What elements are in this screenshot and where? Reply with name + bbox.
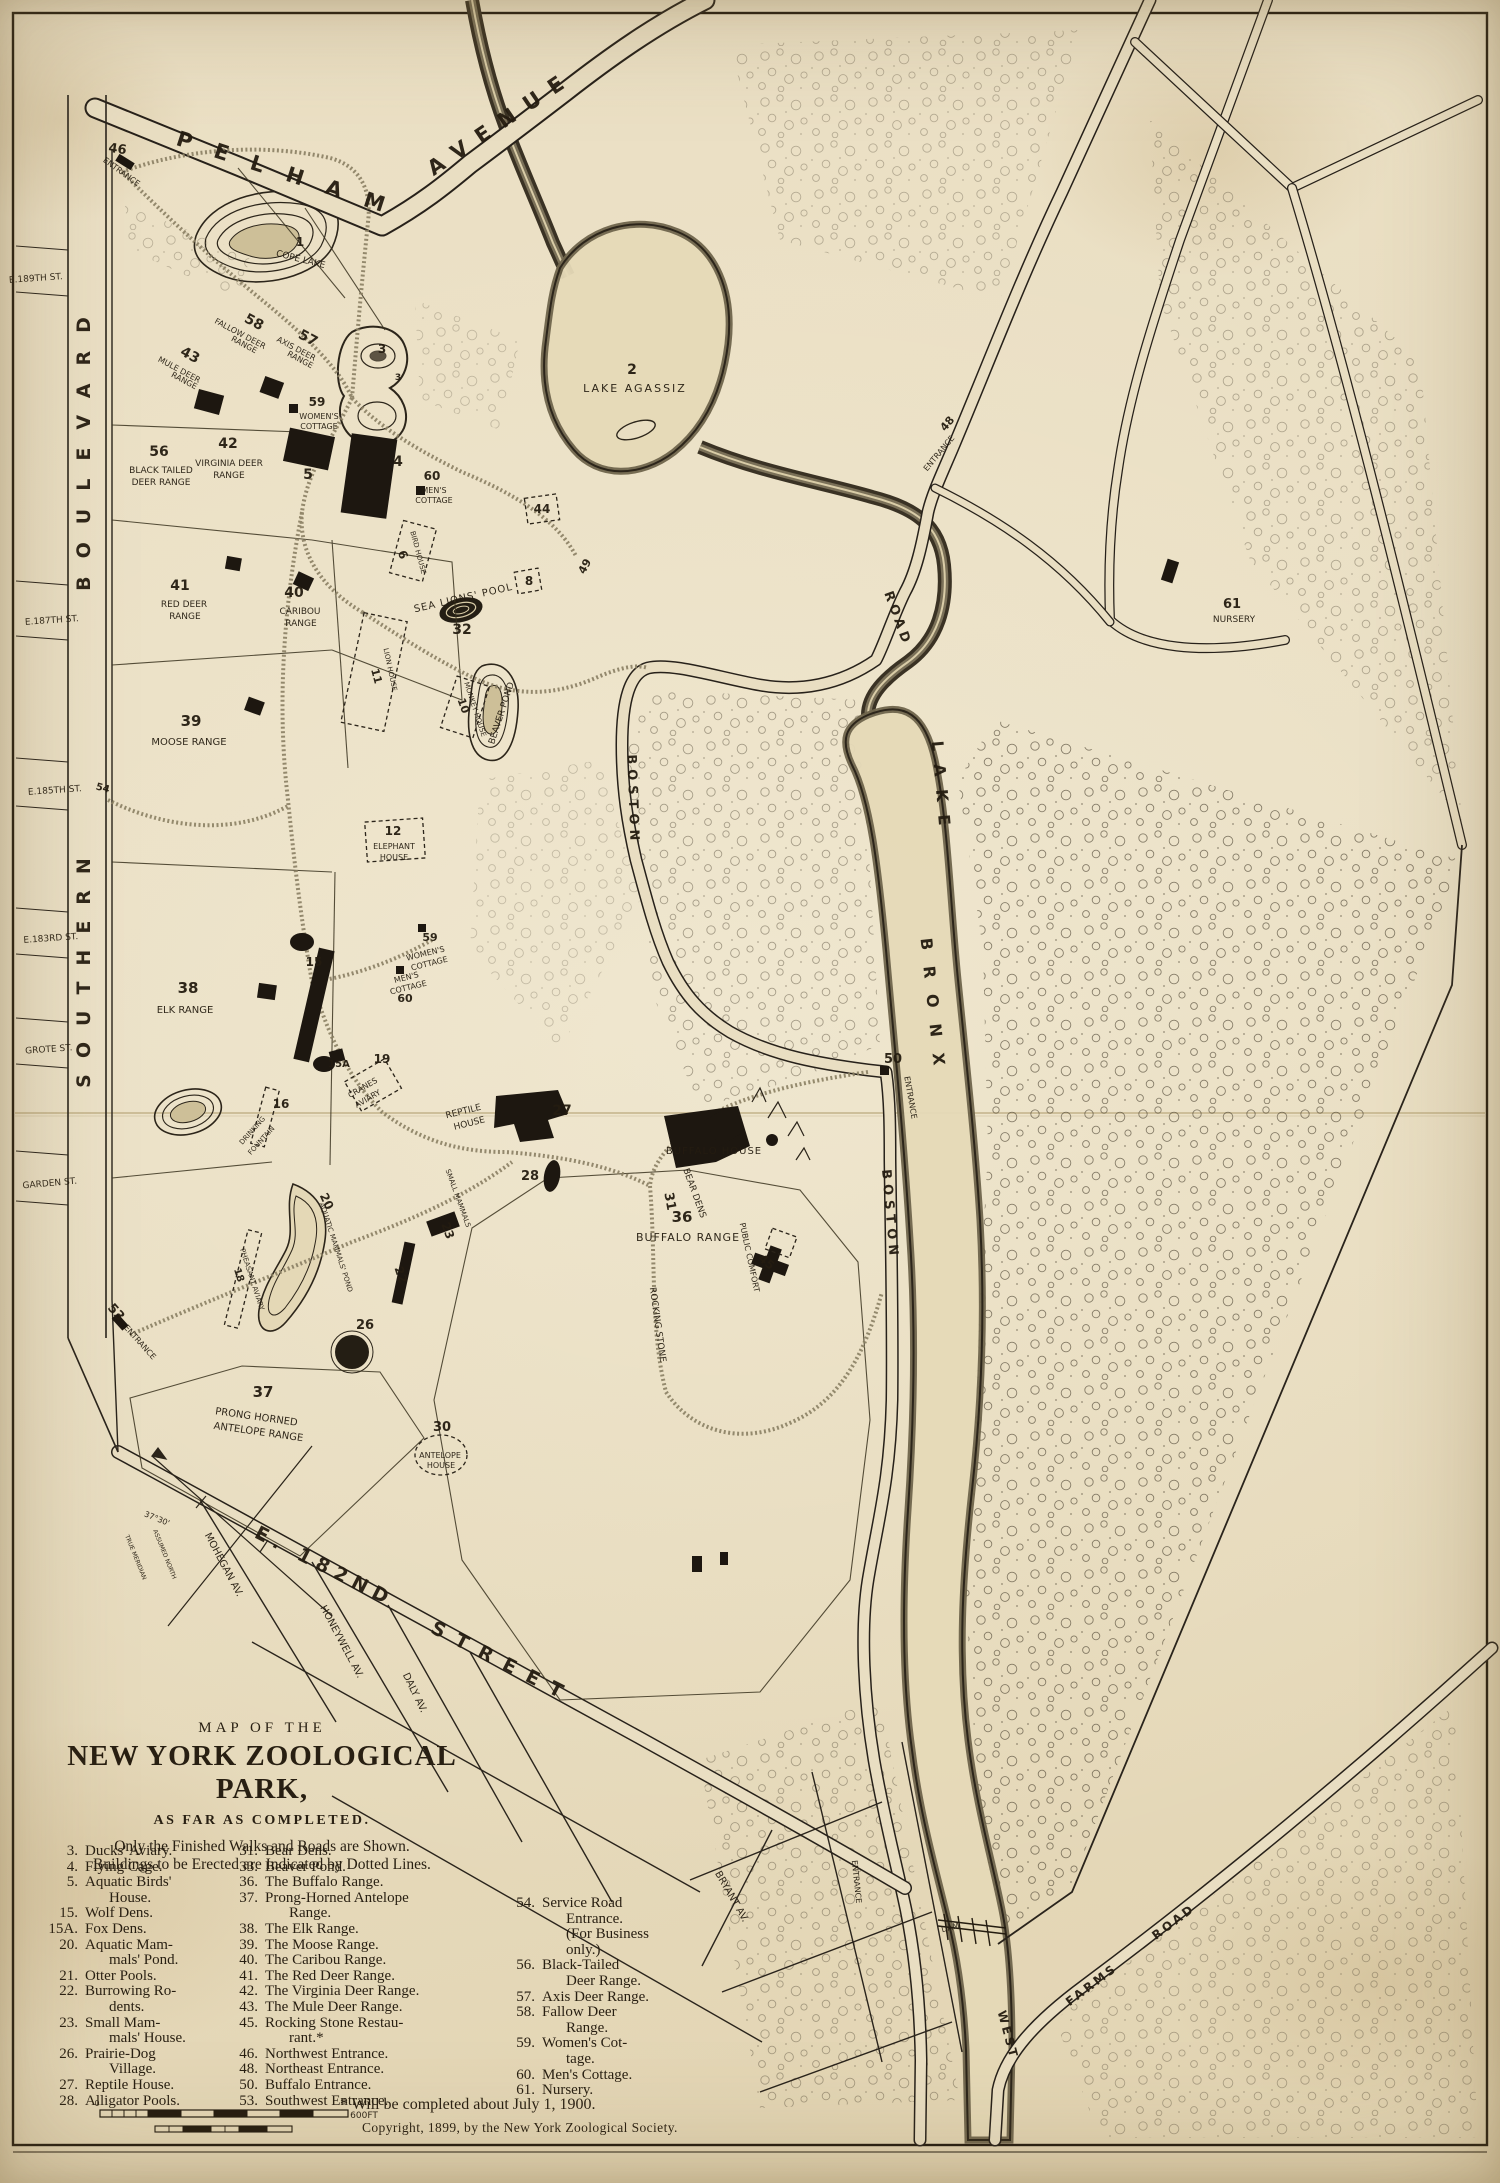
nursery-building <box>1161 559 1179 584</box>
legend-item: 50.Buffalo Entrance. <box>218 2078 473 2094</box>
legend-item-line: mals' Pond. <box>85 1953 228 1969</box>
legend-item: 37.Prong-Horned AntelopeRange. <box>218 1891 473 1922</box>
legend-item-line: Prong-Horned Antelope <box>265 1891 473 1907</box>
legend-item-number: 22. <box>38 1984 85 2000</box>
legend-item-line: Entrance. <box>542 1912 720 1928</box>
label-daly-av: DALY AV. <box>400 1671 429 1714</box>
legend-item-number: 39. <box>218 1938 265 1954</box>
legend-item: 15.Wolf Dens. <box>38 1906 228 1922</box>
label-boston-road: BOSTON <box>878 1169 901 1261</box>
label-compass-meridian: TRUE MERIDIAN <box>123 1533 148 1581</box>
legend-item-line: Northwest Entrance. <box>265 2047 473 2063</box>
legend-item: 46.Northwest Entrance. <box>218 2047 473 2063</box>
legend-item-number: 53. <box>218 2094 265 2110</box>
label-garden-st: GARDEN ST. <box>22 1177 77 1192</box>
label-southern-boulevard: BOULEVARD <box>73 299 95 591</box>
label-womens-cottage: COTTAGE <box>300 422 337 431</box>
legend-item-number: 5. <box>38 1875 85 1891</box>
label-rocking-stone: ROCKING STONE <box>647 1287 667 1363</box>
label-44: 44 <box>534 502 551 516</box>
lake-agassiz <box>544 224 729 471</box>
legend-item-text: Aquatic Mam-mals' Pond. <box>85 1938 228 1969</box>
label-nursery: NURSERY <box>1213 615 1256 625</box>
label-8: 8 <box>525 574 533 588</box>
legend-item: 54.Service RoadEntrance.(For Businessonl… <box>495 1896 720 1958</box>
legend-item-text: Wolf Dens. <box>85 1906 228 1922</box>
legend-item-number: 28. <box>38 2094 85 2110</box>
label-drinking-fountain: 16 <box>273 1097 290 1111</box>
legend-item-line: Small Mam- <box>85 2016 228 2032</box>
label-mens-cottage: MEN'S <box>421 486 446 495</box>
legend-item-line: Buffalo Entrance. <box>265 2078 473 2094</box>
label-elephant-house: HOUSE <box>380 853 408 862</box>
legend-item-line: The Moose Range. <box>265 1938 473 1954</box>
legend-item-text: Aquatic Birds'House. <box>85 1875 228 1906</box>
label-northwest-entrance: 46 <box>107 141 127 158</box>
label-buffalo-range: BUFFALO RANGE <box>636 1231 740 1244</box>
legend-item-line: Range. <box>542 2021 720 2037</box>
legend-item-line: Bear Dens. <box>265 1844 473 1860</box>
label-alligator-pools: 28 <box>521 1169 539 1184</box>
compass-rose <box>152 1446 332 1626</box>
label-southern-boulevard: SOUTHERN <box>73 842 95 1088</box>
alligator-pool <box>541 1159 562 1193</box>
ducks-aviary-ponds <box>338 327 407 446</box>
flying-cage-building <box>341 433 398 519</box>
legend-item: 42.The Virginia Deer Range. <box>218 1984 473 2000</box>
legend-item: 4.Flying Cage. <box>38 1860 228 1876</box>
label-black-tailed-deer: BLACK TAILED <box>129 466 193 476</box>
label-e183rd-st: E.183RD ST. <box>23 932 78 946</box>
legend-item-text: Women's Cot-tage. <box>542 2036 720 2067</box>
legend-item: 33.Beaver Pond. <box>218 1860 473 1876</box>
legend-item-line: (For Business <box>542 1927 720 1943</box>
legend-item-number: 21. <box>38 1969 85 1985</box>
legend-item: 38.The Elk Range. <box>218 1922 473 1938</box>
label-caribou: CARIBOU <box>279 607 320 617</box>
legend-item-line: The Mule Deer Range. <box>265 2000 473 2016</box>
label-virginia-deer: VIRGINIA DEER <box>195 459 263 469</box>
label-bird-house: 6 <box>395 548 411 561</box>
label-pelham-avenue: PELHAM <box>173 127 410 225</box>
legend-item-line: Beaver Pond. <box>265 1860 473 1876</box>
label-black-tailed-deer: 56 <box>149 444 168 460</box>
legend-item-number: 56. <box>495 1958 542 1974</box>
label-mule-deer: 43 <box>178 344 203 367</box>
legend-item-text: Fallow DeerRange. <box>542 2005 720 2036</box>
legend-item: 43.The Mule Deer Range. <box>218 2000 473 2016</box>
legend-item-text: Buffalo Entrance. <box>265 2078 473 2094</box>
prairie-dog-village-circle <box>335 1335 369 1369</box>
label-e182nd-street: E. 182ND <box>251 1522 398 1612</box>
legend-item-number: 27. <box>38 2078 85 2094</box>
legend-item-text: Reptile House. <box>85 2078 228 2094</box>
legend-item-line: The Red Deer Range. <box>265 1969 473 1985</box>
label-womens-cottage-2: 59 <box>422 931 437 944</box>
legend-item: 36.The Buffalo Range. <box>218 1875 473 1891</box>
legend-item-text: Bear Dens. <box>265 1844 473 1860</box>
legend-item-text: Axis Deer Range. <box>542 1990 720 2006</box>
southern-boulevard <box>16 95 118 1452</box>
legend-item-text: The Caribou Range. <box>265 1953 473 1969</box>
legend-item: 57.Axis Deer Range. <box>495 1990 720 2006</box>
legend-item-line: Flying Cage. <box>85 1860 228 1876</box>
legend-item-line: Rocking Stone Restau- <box>265 2016 473 2032</box>
label-compass-angle: 37°30' <box>143 1510 171 1528</box>
label-e187th-st: E.187TH ST. <box>25 614 79 628</box>
legend-item: 58.Fallow DeerRange. <box>495 2005 720 2036</box>
legend-item-text: Men's Cottage. <box>542 2068 720 2084</box>
womens-cottage-building <box>289 404 298 413</box>
legend-item-text: Prairie-DogVillage. <box>85 2047 228 2078</box>
legend-item-text: Northeast Entrance. <box>265 2062 473 2078</box>
legend-item-line: only.) <box>542 1943 720 1959</box>
legend-item-line: Alligator Pools. <box>85 2094 228 2110</box>
legend-item-number: 42. <box>218 1984 265 2000</box>
label-elephant-house: ELEPHANT <box>373 842 415 851</box>
legend-item-text: Small Mam-mals' House. <box>85 2016 228 2047</box>
legend-item-number: 15. <box>38 1906 85 1922</box>
legend-item-number: 26. <box>38 2047 85 2063</box>
bear-dens-building <box>664 1106 750 1168</box>
label-buffalo-range: 36 <box>672 1208 693 1226</box>
label-boston-road: BOSTON <box>623 754 641 846</box>
legend-item-number: 31. <box>218 1844 265 1860</box>
label-antelope-house: 30 <box>433 1420 451 1435</box>
legend-item: 39.The Moose Range. <box>218 1938 473 1954</box>
label-caribou: RANGE <box>285 619 317 629</box>
legend-item-line: Men's Cottage. <box>542 2068 720 2084</box>
label-flying-cage: 4 <box>393 454 403 470</box>
legend-item: 20.Aquatic Mam-mals' Pond. <box>38 1938 228 1969</box>
legend-item-line: Reptile House. <box>85 2078 228 2094</box>
legend-item-line: Prairie-Dog <box>85 2047 228 2063</box>
legend-item-number: 59. <box>495 2036 542 2052</box>
legend-item-line: Range. <box>265 1906 473 1922</box>
label-mens-cottage-2: 60 <box>397 992 413 1005</box>
label-bird-house: BIRD HOUSE <box>408 530 427 575</box>
legend-item-text: The Virginia Deer Range. <box>265 1984 473 2000</box>
legend-column-1: 3.Ducks' Aviary.4.Flying Cage.5.Aquatic … <box>38 1844 228 2109</box>
label-cope-lake: COPE LAKE <box>275 249 327 271</box>
legend-item-line: The Buffalo Range. <box>265 1875 473 1891</box>
label-buffalo-house: BUFFALO HOUSE <box>666 1146 762 1157</box>
legend-item: 27.Reptile House. <box>38 2078 228 2094</box>
legend-item-line: dents. <box>85 2000 228 2016</box>
legend-item-text: Beaver Pond. <box>265 1860 473 1876</box>
legend-column-2: 31.Bear Dens.33.Beaver Pond.36.The Buffa… <box>218 1844 473 2109</box>
legend-item-line: Burrowing Ro- <box>85 1984 228 2000</box>
legend-item-number: 58. <box>495 2005 542 2021</box>
legend-item: 15A.Fox Dens. <box>38 1922 228 1938</box>
legend-item-line: Village. <box>85 2062 228 2078</box>
legend-item: 3.Ducks' Aviary. <box>38 1844 228 1860</box>
legend-item-number: 48. <box>218 2062 265 2078</box>
legend-item-number: 38. <box>218 1922 265 1938</box>
legend-item: 22.Burrowing Ro-dents. <box>38 1984 228 2015</box>
legend-item: 26.Prairie-DogVillage. <box>38 2047 228 2078</box>
legend-item-text: The Buffalo Range. <box>265 1875 473 1891</box>
legend-item-text: Service RoadEntrance.(For Businessonly.) <box>542 1896 720 1958</box>
label-e189th-st: E.189TH ST. <box>9 272 63 286</box>
buffalo-entrance-gate <box>880 1066 889 1075</box>
legend-item-number: 43. <box>218 2000 265 2016</box>
legend-item-number: 37. <box>218 1891 265 1907</box>
legend-item-line: Northeast Entrance. <box>265 2062 473 2078</box>
label-buffalo-entrance: 50 <box>884 1052 902 1067</box>
label-49: 49 <box>576 557 595 577</box>
footnote: * Will be completed about July 1, 1900. <box>340 2096 595 2114</box>
legend-item: 28.Alligator Pools. <box>38 2094 228 2110</box>
legend-item-line: House. <box>85 1891 228 1907</box>
legend-item-line: Ducks' Aviary. <box>85 1844 228 1860</box>
label-fox-dens: 15A <box>328 1059 350 1070</box>
label-sea-lions-pool: 32 <box>452 622 471 638</box>
copyright: Copyright, 1899, by the New York Zoologi… <box>362 2120 678 2136</box>
legend-item-line: Otter Pools. <box>85 1969 228 1985</box>
legend-item: 21.Otter Pools. <box>38 1969 228 1985</box>
legend-item-number: 33. <box>218 1860 265 1876</box>
legend-item-text: The Elk Range. <box>265 1922 473 1938</box>
label-mohegan-av: MOHEGAN AV. <box>202 1531 245 1598</box>
legend-item-text: Otter Pools. <box>85 1969 228 1985</box>
legend-item: 59.Women's Cot-tage. <box>495 2036 720 2067</box>
label-elk-range: ELK RANGE <box>157 1005 214 1016</box>
legend-item: 23.Small Mam-mals' House. <box>38 2016 228 2047</box>
legend-item: 31.Bear Dens. <box>218 1844 473 1860</box>
legend-item-number: 36. <box>218 1875 265 1891</box>
label-service-entrance: 54 <box>94 781 110 795</box>
label-elephant-house: 12 <box>385 824 402 838</box>
legend-item-text: Prong-Horned AntelopeRange. <box>265 1891 473 1922</box>
label-nursery: 61 <box>1223 597 1241 612</box>
legend-item-line: The Elk Range. <box>265 1922 473 1938</box>
label-antelope-house: ANTELOPE <box>419 1451 461 1460</box>
legend-item-text: Rocking Stone Restau-rant.* <box>265 2016 473 2047</box>
label-pelham-avenue: AVENUE <box>423 64 579 180</box>
legend-item-line: Deer Range. <box>542 1974 720 1990</box>
label-mens-cottage: COTTAGE <box>415 496 452 505</box>
label-compass-north: ASSUMED NORTH <box>151 1529 177 1581</box>
label-cope-lake: 1 <box>296 235 304 249</box>
label-aquatic-birds-house: 5 <box>303 467 313 483</box>
label-reptile-house: 27 <box>552 1103 571 1119</box>
legend-item: 56.Black-TailedDeer Range. <box>495 1958 720 1989</box>
legend-item: 41.The Red Deer Range. <box>218 1969 473 1985</box>
legend-item-line: tage. <box>542 2052 720 2068</box>
label-lake-agassiz: 2 <box>627 362 637 378</box>
legend-item-line: rant.* <box>265 2031 473 2047</box>
legend-item-number: 60. <box>495 2068 542 2084</box>
legend-item-text: Ducks' Aviary. <box>85 1844 228 1860</box>
legend-item-line: The Caribou Range. <box>265 1953 473 1969</box>
legend-item-number: 3. <box>38 1844 85 1860</box>
map-title-kicker: MAP OF THE <box>38 1720 486 1737</box>
legend-item-number: 40. <box>218 1953 265 1969</box>
label-womens-cottage: 59 <box>309 395 326 409</box>
legend-item-number: 41. <box>218 1969 265 1985</box>
label-cranes-aviary: 19 <box>374 1052 391 1066</box>
label-black-tailed-deer: DEER RANGE <box>132 478 191 488</box>
legend-item-text: Fox Dens. <box>85 1922 228 1938</box>
label-grote-st: GROTE ST. <box>25 1043 73 1056</box>
legend-item-line: Fallow Deer <box>542 2005 720 2021</box>
label-red-deer: RED DEER <box>161 600 207 610</box>
label-lion-house: 11 <box>368 667 385 685</box>
legend-item: 60.Men's Cottage. <box>495 2068 720 2084</box>
legend-item-line: Service Road <box>542 1896 720 1912</box>
legend-item-number: 45. <box>218 2016 265 2032</box>
label-elk-range: 38 <box>178 979 199 997</box>
legend-item-line: Aquatic Birds' <box>85 1875 228 1891</box>
label-wolf-dens: 15 <box>306 955 323 969</box>
legend-item-line: mals' House. <box>85 2031 228 2047</box>
legend-item-text: The Red Deer Range. <box>265 1969 473 1985</box>
legend-item-line: Aquatic Mam- <box>85 1938 228 1954</box>
label-southwest-entrance: ENTRANCE <box>122 1323 158 1361</box>
aquatic-mammals-pond <box>259 1184 326 1331</box>
label-honeywell-av: HONEYWELL AV. <box>317 1604 365 1680</box>
legend-item-line: Wolf Dens. <box>85 1906 228 1922</box>
legend: 3.Ducks' Aviary.4.Flying Cage.5.Aquatic … <box>38 1844 728 2114</box>
legend-item-line: Fox Dens. <box>85 1922 228 1938</box>
legend-item-number: 20. <box>38 1938 85 1954</box>
map-subtitle: AS FAR AS COMPLETED. <box>38 1813 486 1829</box>
label-e182nd-street: STREET <box>427 1617 578 1708</box>
legend-item-line: Black-Tailed <box>542 1958 720 1974</box>
legend-item-line: The Virginia Deer Range. <box>265 1984 473 2000</box>
legend-item-line: Women's Cot- <box>542 2036 720 2052</box>
legend-item-number: 50. <box>218 2078 265 2094</box>
legend-item: 45.Rocking Stone Restau-rant.* <box>218 2016 473 2047</box>
legend-item-text: Burrowing Ro-dents. <box>85 1984 228 2015</box>
legend-item-line: Axis Deer Range. <box>542 1990 720 2006</box>
legend-item: 48.Northeast Entrance. <box>218 2062 473 2078</box>
aquatic-birds-house-building <box>283 428 335 471</box>
label-ducks-aviary: 3 <box>395 373 401 383</box>
label-virginia-deer: RANGE <box>213 471 245 481</box>
legend-item-number: 46. <box>218 2047 265 2063</box>
legend-item-text: Black-TailedDeer Range. <box>542 1958 720 1989</box>
label-lake-agassiz: LAKE AGASSIZ <box>583 382 687 395</box>
legend-column-3: 54.Service RoadEntrance.(For Businessonl… <box>495 1896 720 2099</box>
legend-item-number: 15A. <box>38 1922 85 1938</box>
map-title: NEW YORK ZOOLOGICAL PARK, <box>38 1740 486 1806</box>
legend-item-number: 54. <box>495 1896 542 1912</box>
legend-item-number: 23. <box>38 2016 85 2032</box>
map-sheet: 0 600FT PELHAMAVENUEBOULEVARDSOUTHERNE.1… <box>0 0 1500 2183</box>
label-moose-range: 39 <box>181 712 202 730</box>
bird-house-planned <box>390 521 437 582</box>
legend-item-text: Alligator Pools. <box>85 2094 228 2110</box>
label-womens-cottage: WOMEN'S <box>299 412 338 421</box>
legend-item-text: The Moose Range. <box>265 1938 473 1954</box>
legend-item-number: 4. <box>38 1860 85 1876</box>
label-pheasant-aviary: 18 <box>231 1267 246 1284</box>
label-antelope-house: HOUSE <box>427 1461 455 1470</box>
legend-item-text: Northwest Entrance. <box>265 2047 473 2063</box>
label-e185th-st: E.185TH ST. <box>28 784 82 798</box>
label-red-deer: RANGE <box>169 612 201 622</box>
legend-item-number: 57. <box>495 1990 542 2006</box>
legend-item-text: Flying Cage. <box>85 1860 228 1876</box>
legend-item: 40.The Caribou Range. <box>218 1953 473 1969</box>
label-red-deer: 41 <box>170 578 189 594</box>
label-mens-cottage: 60 <box>424 469 441 483</box>
label-ducks-aviary: 3 <box>378 342 386 356</box>
label-caribou: 40 <box>284 585 304 601</box>
label-moose-range: MOOSE RANGE <box>151 737 226 748</box>
label-prong-horned-range: 37 <box>253 1383 274 1401</box>
label-prairie-dog-village: 26 <box>356 1318 374 1333</box>
label-virginia-deer: 42 <box>218 436 237 452</box>
legend-item-text: The Mule Deer Range. <box>265 2000 473 2016</box>
legend-item: 5.Aquatic Birds'House. <box>38 1875 228 1906</box>
